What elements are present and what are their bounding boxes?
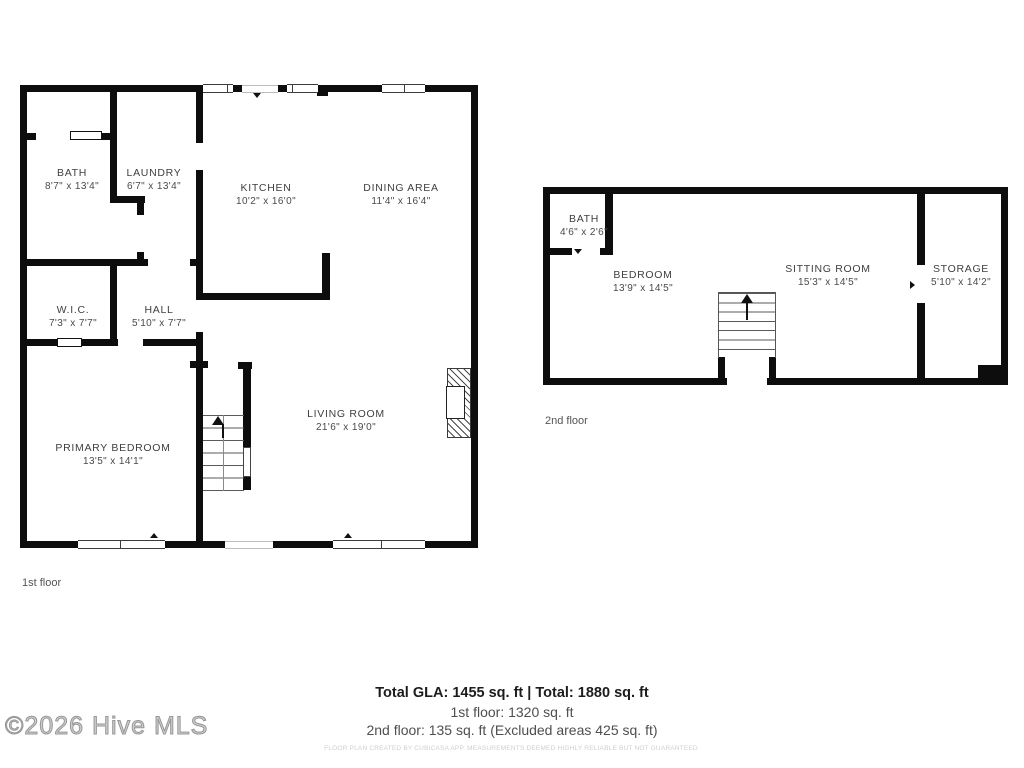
room-name: PRIMARY BEDROOM [55,441,170,455]
room-dims: 4'6" x 2'6" [560,226,608,240]
room-name: DINING AREA [363,181,438,195]
total-gla-line: Total GLA: 1455 sq. ft | Total: 1880 sq.… [0,683,1024,703]
room-dims: 6'7" x 13'4" [127,180,182,194]
room-name: LIVING ROOM [307,407,385,421]
room-label-bedroom-2f: BEDROOM 13'9" x 14'5" [613,268,673,296]
door-direction-icon [253,93,261,98]
room-name: SITTING ROOM [785,262,870,276]
wall [917,194,925,265]
window [287,84,318,93]
window [333,540,425,549]
wall [917,303,925,378]
wall [543,187,1008,194]
room-label-sitting-room: SITTING ROOM 15'3" x 14'5" [785,262,870,290]
wall [110,92,117,203]
room-label-hall: HALL 5'10" x 7'7" [132,303,186,331]
room-label-laundry: LAUNDRY 6'7" x 13'4" [127,166,182,194]
wall [243,362,251,447]
window-mullion [227,85,228,92]
hive-mls-watermark: ©2026 Hive MLS [5,712,208,741]
wall [143,339,203,346]
room-name: HALL [132,303,186,317]
first-floor-tag: 1st floor [22,577,61,589]
room-label-bath-1f: BATH 8'7" x 13'4" [45,166,99,194]
window [78,540,165,549]
room-dims: 15'3" x 14'5" [785,276,870,290]
wall [1001,187,1008,385]
wall [190,361,208,368]
room-name: BEDROOM [613,268,673,282]
wall [196,170,203,300]
door-direction-icon [574,249,582,254]
room-label-primary-bedroom: PRIMARY BEDROOM 13'5" x 14'1" [55,441,170,469]
room-name: W.I.C. [49,303,97,317]
room-label-storage: STORAGE 5'10" x 14'2" [931,262,991,290]
wall [82,339,118,346]
room-dims: 5'10" x 7'7" [132,317,186,331]
door-leaf [70,131,102,140]
window [203,84,233,93]
room-label-dining: DINING AREA 11'4" x 16'4" [363,181,438,209]
wall [243,477,251,490]
room-dims: 21'6" x 19'0" [307,421,385,435]
wall [137,252,144,259]
door-direction-icon [344,533,352,538]
wall [978,365,1003,382]
wall [471,85,478,548]
wall [718,357,725,380]
wall [110,266,117,346]
room-dims: 8'7" x 13'4" [45,180,99,194]
room-name: LAUNDRY [127,166,182,180]
wall [20,339,57,346]
wall [767,378,1008,385]
window-mullion [381,541,382,548]
second-floor-tag: 2nd floor [545,415,588,427]
wall [769,357,776,380]
window-mullion [404,85,405,92]
door-direction-icon [150,533,158,538]
wall [137,203,144,215]
wall [110,196,145,203]
wall [322,253,330,300]
floorplan-page: BATH 8'7" x 13'4" LAUNDRY 6'7" x 13'4" K… [0,0,1024,768]
wall [20,259,148,266]
stairs-up-arrow-shaft [222,424,224,438]
wall [196,293,330,300]
room-label-living-room: LIVING ROOM 21'6" x 19'0" [307,407,385,435]
wall [550,248,572,255]
room-dims: 5'10" x 14'2" [931,276,991,290]
window-mullion [120,541,121,548]
room-dims: 10'2" x 16'0" [236,195,296,209]
cubicasa-disclaimer: FLOOR PLAN CREATED BY CUBICASA APP. MEAS… [0,745,1024,752]
window-mullion [292,85,293,92]
stairs-up-arrow-shaft [746,302,748,320]
wall [20,85,27,548]
wall [543,187,550,385]
room-label-kitchen: KITCHEN 10'2" x 16'0" [236,181,296,209]
room-name: STORAGE [931,262,991,276]
doorway-opening [225,541,273,549]
room-dims: 13'5" x 14'1" [55,455,170,469]
room-label-wic: W.I.C. 7'3" x 7'7" [49,303,97,331]
wall [27,133,36,140]
window [382,84,425,93]
room-name: BATH [560,212,608,226]
doorway-opening [242,85,278,93]
wall [600,248,613,255]
room-dims: 13'9" x 14'5" [613,282,673,296]
door-direction-icon [910,281,915,289]
room-name: KITCHEN [236,181,296,195]
room-dims: 7'3" x 7'7" [49,317,97,331]
room-name: BATH [45,166,99,180]
fireplace-firebox [446,386,465,419]
staircase-railing-1f [243,447,251,477]
wall [543,378,727,385]
room-dims: 11'4" x 16'4" [363,195,438,209]
room-label-bath-2f: BATH 4'6" x 2'6" [560,212,608,240]
wall [196,92,203,143]
door-leaf [57,338,82,347]
wall [317,92,328,96]
